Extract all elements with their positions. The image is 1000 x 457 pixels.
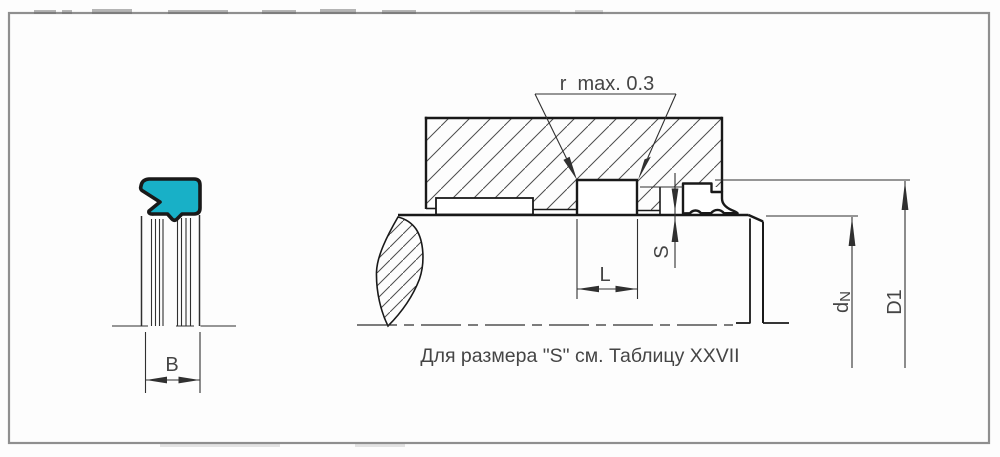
scan-artifacts [34, 9, 603, 447]
seal-projection-lines [142, 215, 200, 326]
rod [357, 215, 789, 326]
b-arrow-right [179, 377, 200, 384]
b-label: B [165, 354, 178, 376]
guide-ring [436, 198, 533, 215]
b-dimension: B [146, 332, 201, 393]
l-label: L [599, 264, 610, 286]
wiper-seal-profile [683, 184, 738, 214]
seal-profile-shape [141, 179, 200, 220]
s-dimension: S [640, 173, 683, 268]
seal-groove-cutout [577, 180, 637, 216]
r-max-label: r max. 0.3 [560, 73, 654, 95]
rod-break-lens [376, 217, 422, 326]
d1-label: D1 [884, 289, 906, 315]
b-arrow-left [146, 377, 167, 384]
dn-dimension: dN [766, 216, 858, 368]
l-dimension: L [577, 219, 638, 299]
technical-drawing-page: B [0, 0, 1000, 457]
seal-cross-section-figure: B [112, 179, 236, 393]
footnote: Для размера "S" см. Таблицу XXVII [420, 345, 739, 367]
d1-dimension: D1 [715, 180, 910, 368]
dn-label: dN [831, 291, 854, 313]
installation-figure: r max. 0.3 L S [357, 73, 910, 368]
s-label: S [651, 245, 673, 258]
seal-installation-drawing: B [0, 0, 1000, 457]
housing [424, 117, 722, 216]
s-arrow-lower [672, 218, 679, 243]
